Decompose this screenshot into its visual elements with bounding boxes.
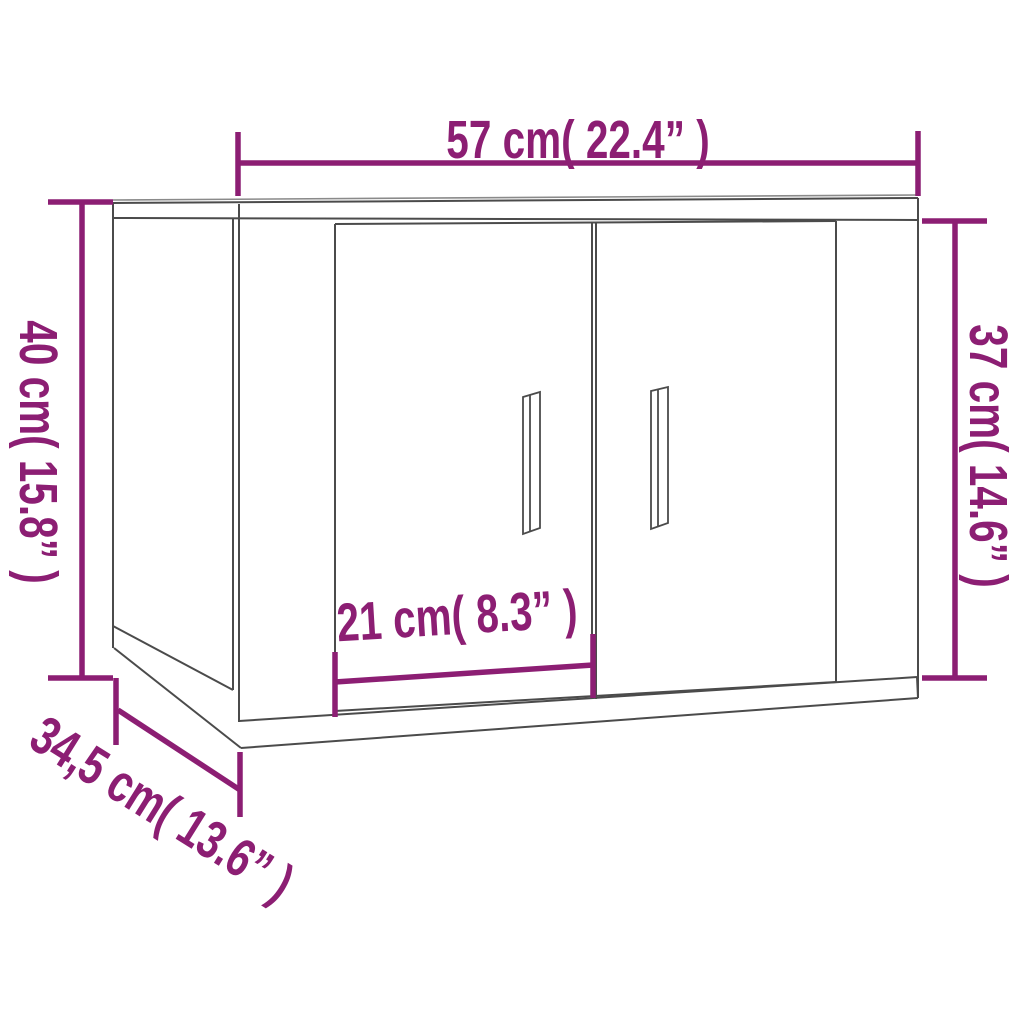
left-door-handle-icon (523, 392, 540, 534)
side-panel-bottom-edge (113, 626, 233, 690)
base-bottom-edge (241, 698, 918, 748)
right-door-handle-icon (651, 387, 668, 529)
base-right-edge (917, 677, 918, 698)
left-height-dimension-label: 40 cm( 15.8” ) (11, 227, 65, 677)
right-height-dimension-label: 37 cm( 14.6” ) (961, 231, 1015, 681)
dimension-diagram: 57 cm( 22.4” ) 40 cm( 15.8” ) 37 cm( 14.… (0, 0, 1024, 1024)
door-top-edge (335, 221, 836, 224)
cabinet-outline (113, 195, 918, 748)
door-bottom-edge (335, 682, 836, 711)
width-dimension-label: 57 cm( 22.4” ) (353, 113, 803, 167)
base-left-lower-edge (114, 648, 241, 748)
